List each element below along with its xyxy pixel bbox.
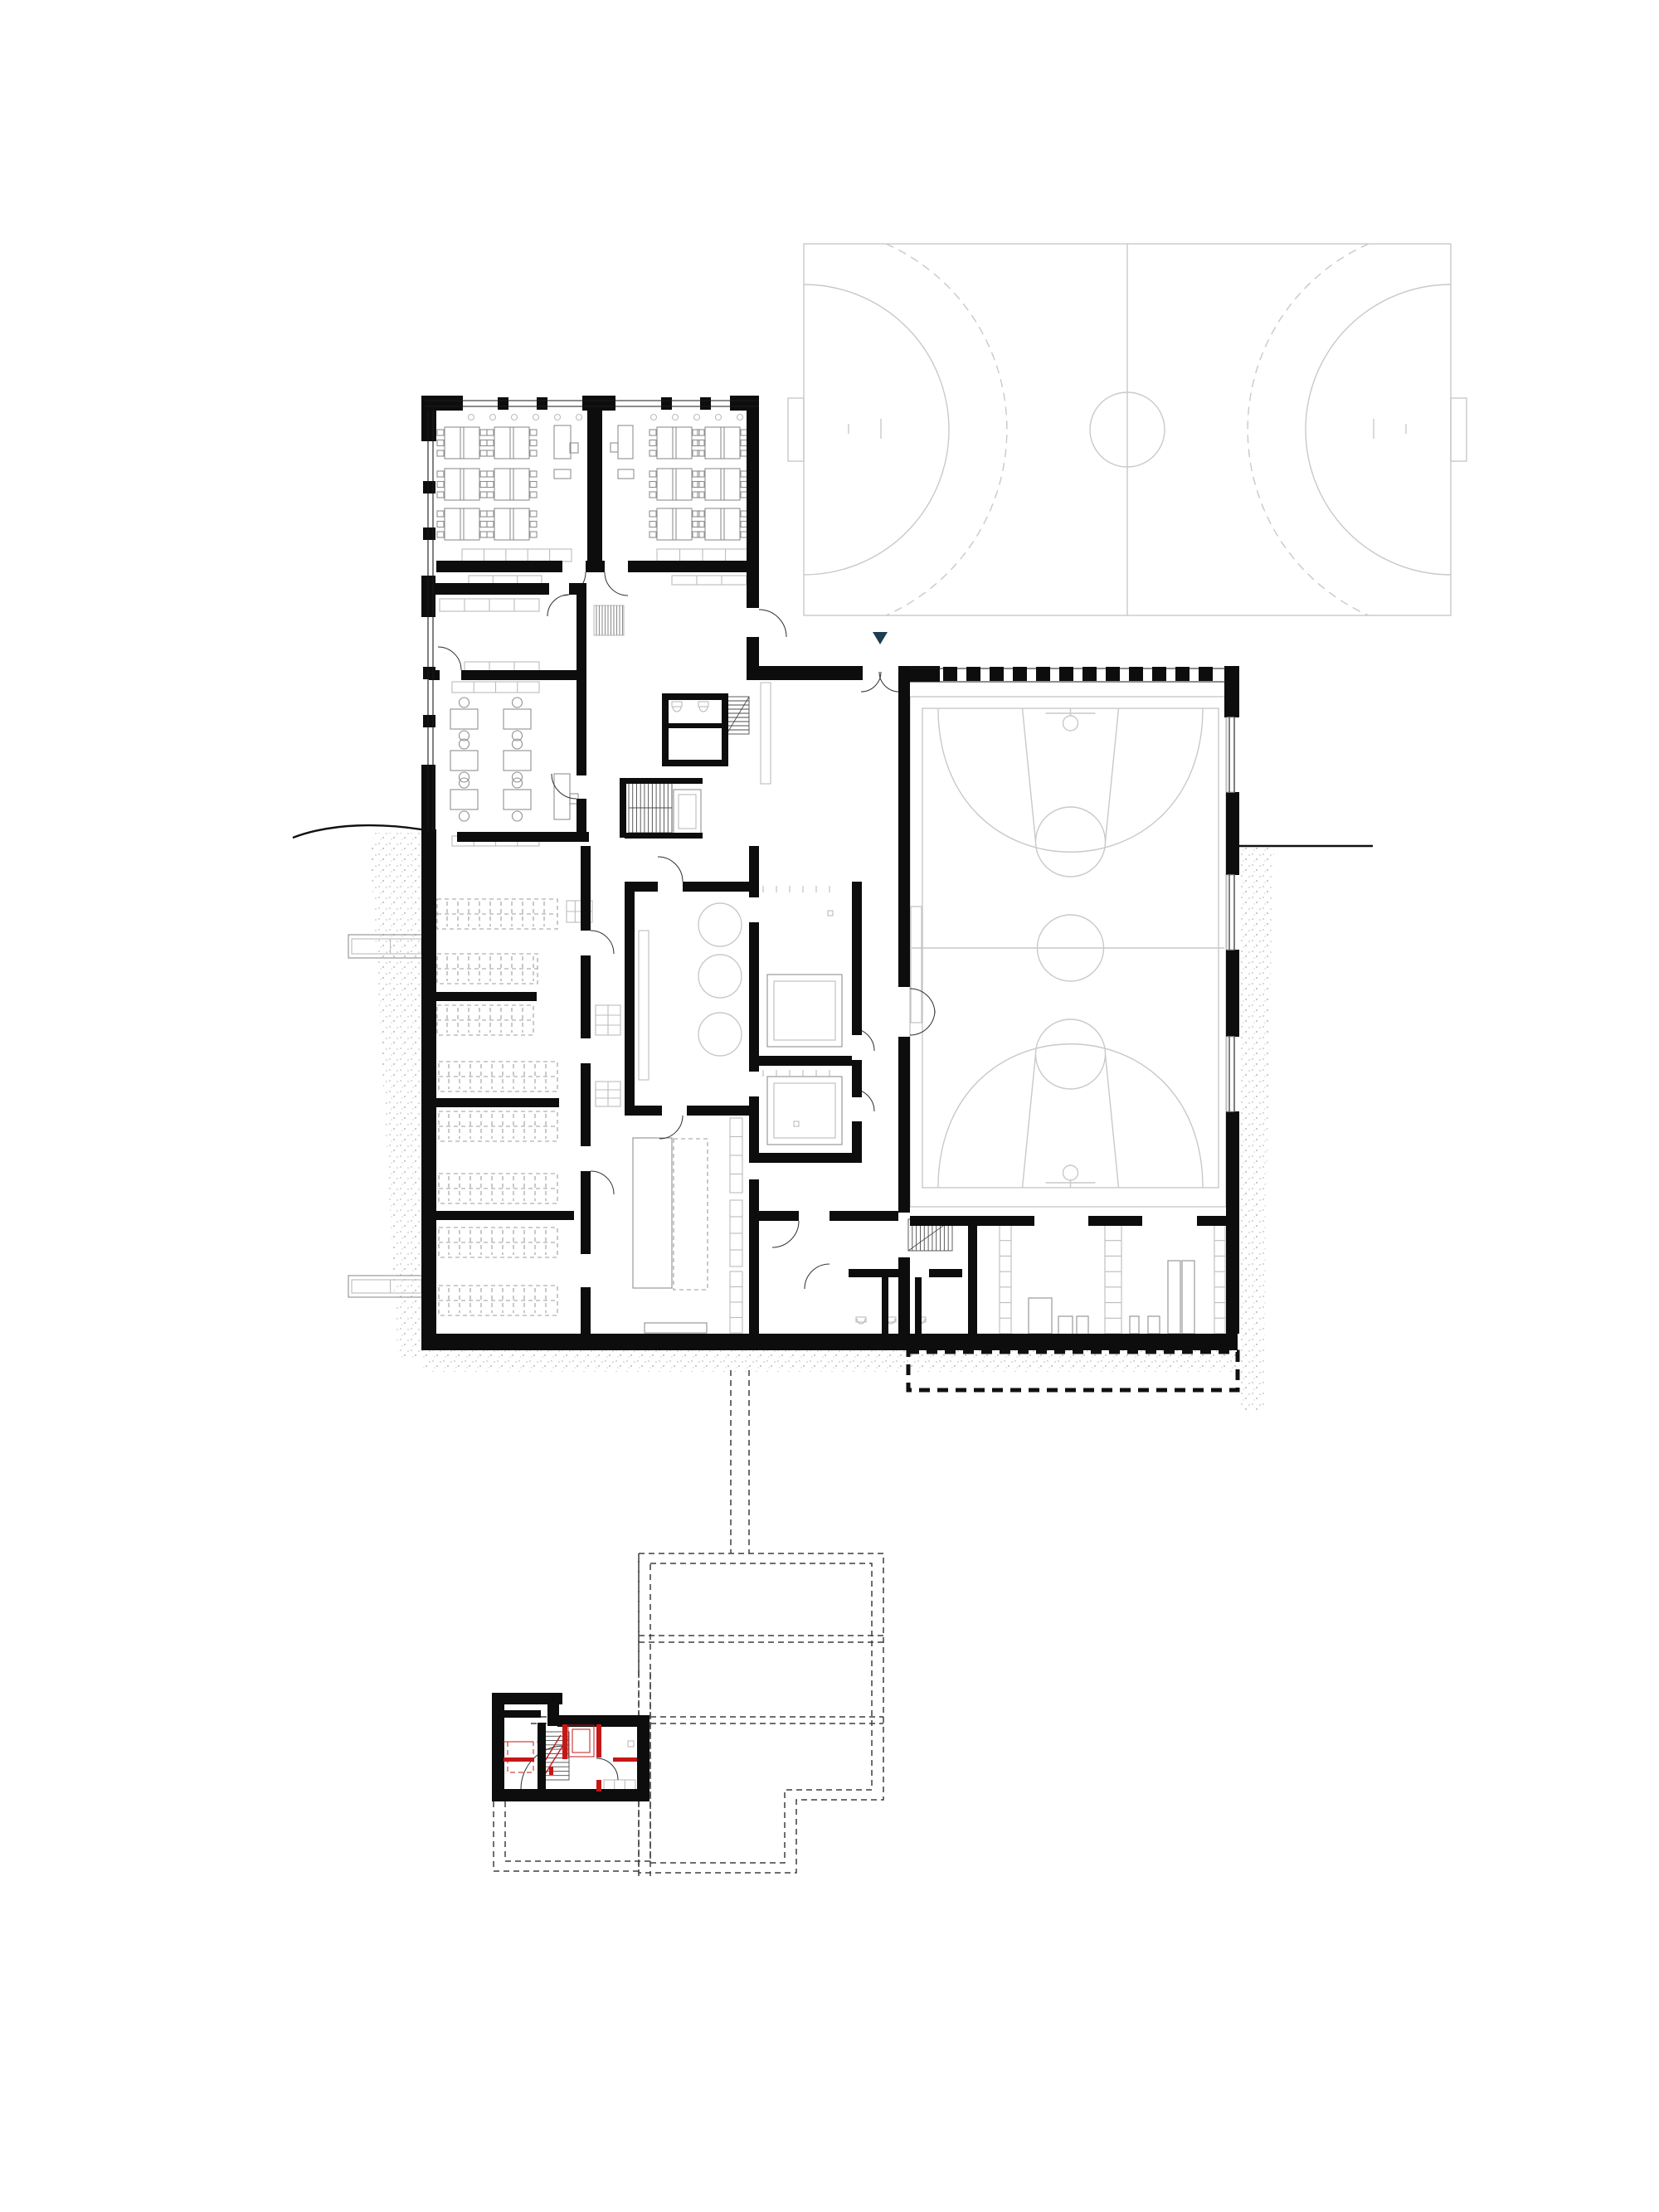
sports-hall-glazed-facade [910,667,1226,682]
detached-basement-plan [492,1672,650,1876]
outdoor-handball-field [788,226,1467,633]
stairs-layer [541,697,952,1780]
window-bands [425,401,1234,1111]
entrance-marker-triangle [873,632,888,644]
floor-plan-page [0,0,1659,2212]
sports-hall-basketball-court [910,697,1226,1207]
door-swing-arcs [438,572,935,1789]
floor-plan-drawing [0,0,1659,2212]
